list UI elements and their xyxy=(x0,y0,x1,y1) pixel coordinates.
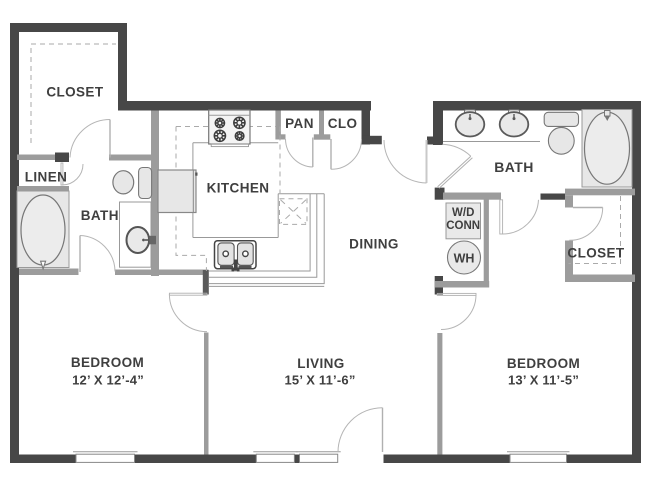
svg-text:CLOSET: CLOSET xyxy=(46,85,104,100)
svg-text:BEDROOM: BEDROOM xyxy=(507,356,580,371)
svg-text:LINEN: LINEN xyxy=(25,170,68,185)
svg-text:W/D: W/D xyxy=(452,207,474,219)
svg-text:DINING: DINING xyxy=(349,237,399,252)
svg-text:13’ X 11’-5”: 13’ X 11’-5” xyxy=(508,373,579,388)
svg-text:BEDROOM: BEDROOM xyxy=(71,355,144,370)
svg-text:BATH: BATH xyxy=(494,159,533,175)
svg-text:WH: WH xyxy=(454,252,475,266)
svg-text:12’ X 12’-4”: 12’ X 12’-4” xyxy=(72,373,144,388)
svg-text:CLO: CLO xyxy=(328,116,358,131)
svg-text:LIVING: LIVING xyxy=(297,356,344,371)
svg-text:BATH: BATH xyxy=(81,208,119,223)
svg-text:CONN: CONN xyxy=(446,220,480,232)
svg-text:CLOSET: CLOSET xyxy=(567,246,625,261)
svg-text:KITCHEN: KITCHEN xyxy=(207,181,270,196)
svg-text:PAN: PAN xyxy=(285,116,314,131)
svg-text:15’ X 11’-6”: 15’ X 11’-6” xyxy=(284,373,355,388)
